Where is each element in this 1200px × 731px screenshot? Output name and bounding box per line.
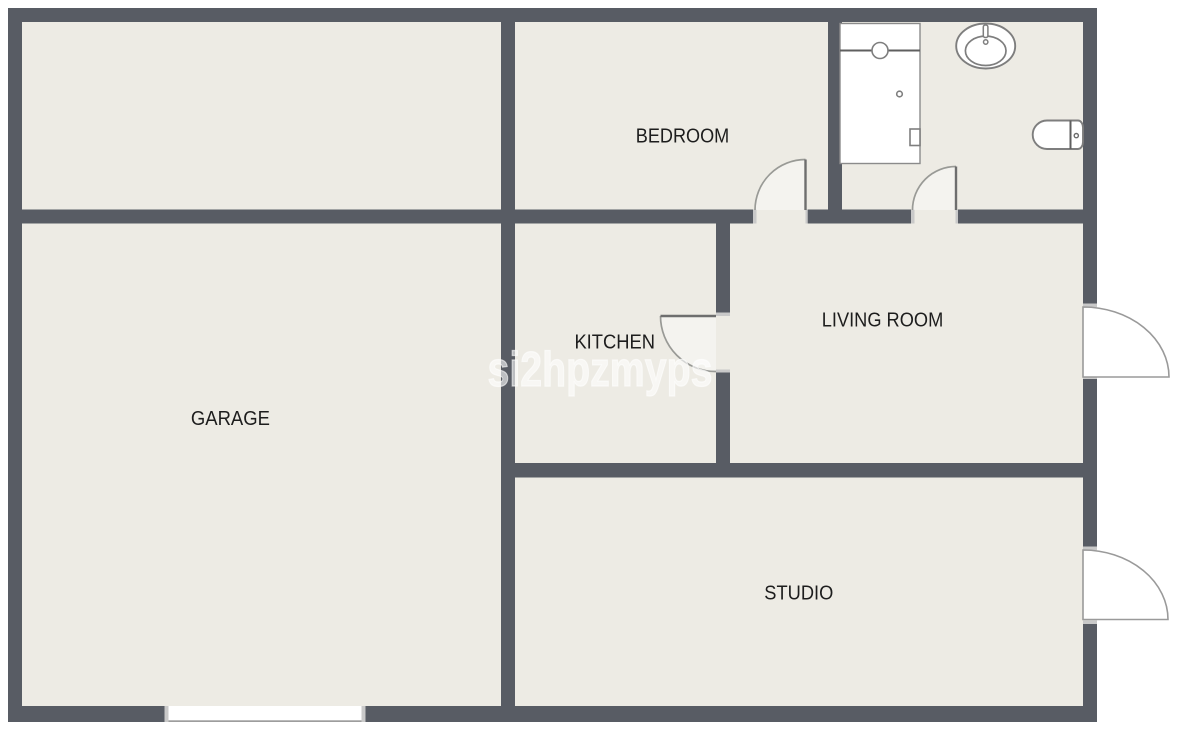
svg-text:si2hpzmyps: si2hpzmyps [488, 342, 713, 397]
svg-text:LIVING ROOM: LIVING ROOM [822, 309, 944, 332]
svg-text:BEDROOM: BEDROOM [636, 125, 730, 148]
svg-text:GARAGE: GARAGE [191, 407, 270, 430]
svg-text:STUDIO: STUDIO [764, 582, 833, 605]
